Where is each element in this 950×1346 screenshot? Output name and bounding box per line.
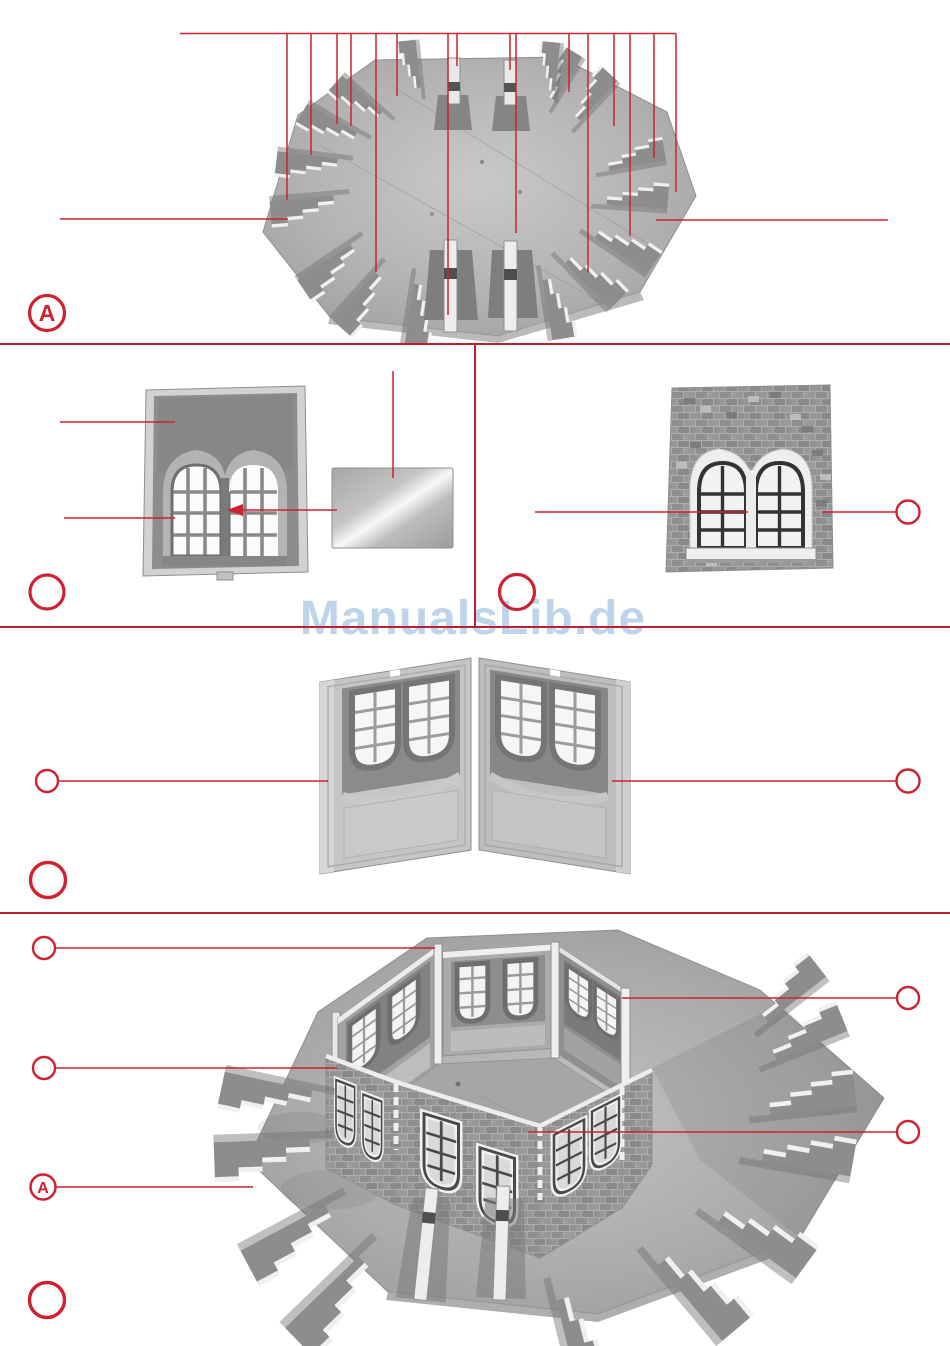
section-joined-walls xyxy=(0,628,950,912)
empty-callout-circle xyxy=(36,770,58,792)
empty-callout-circle xyxy=(500,575,535,610)
joined-walls-photo xyxy=(320,658,630,874)
assembled-structure-photo xyxy=(213,930,884,1346)
empty-callout-circle xyxy=(897,501,920,524)
empty-callout-circle xyxy=(33,937,55,959)
brick-window-left xyxy=(699,463,746,548)
section-assembled: A xyxy=(0,914,950,1346)
empty-callout-circle xyxy=(33,1057,55,1079)
brick-window-right xyxy=(756,463,803,548)
empty-callout-circle xyxy=(31,863,66,898)
section-divider-3 xyxy=(0,912,950,914)
brick-wall-photo xyxy=(666,385,833,572)
empty-callout-circle xyxy=(897,770,920,793)
window-part-inner-photo xyxy=(143,386,308,580)
joined-walls-callouts xyxy=(31,770,920,898)
base-plate-photo xyxy=(263,39,696,343)
section-divider-vertical xyxy=(474,343,476,628)
section-base-plate: A xyxy=(0,0,950,343)
part-label-base-plate: A xyxy=(30,296,65,331)
glazing-sheet-photo xyxy=(332,468,453,548)
empty-callout-circle xyxy=(30,575,64,609)
part-label-assembled-base: A xyxy=(31,1175,56,1200)
empty-callout-circle xyxy=(897,1121,919,1143)
empty-callout-circle xyxy=(897,987,919,1009)
part-label-a-text: A xyxy=(39,300,56,326)
back-center-panel xyxy=(443,944,553,1056)
empty-callout-circle xyxy=(30,1283,65,1318)
window-grid-left xyxy=(172,465,221,556)
manual-page: ManualsLib.de xyxy=(0,0,950,1346)
assembled-label-a-text: A xyxy=(37,1180,49,1197)
